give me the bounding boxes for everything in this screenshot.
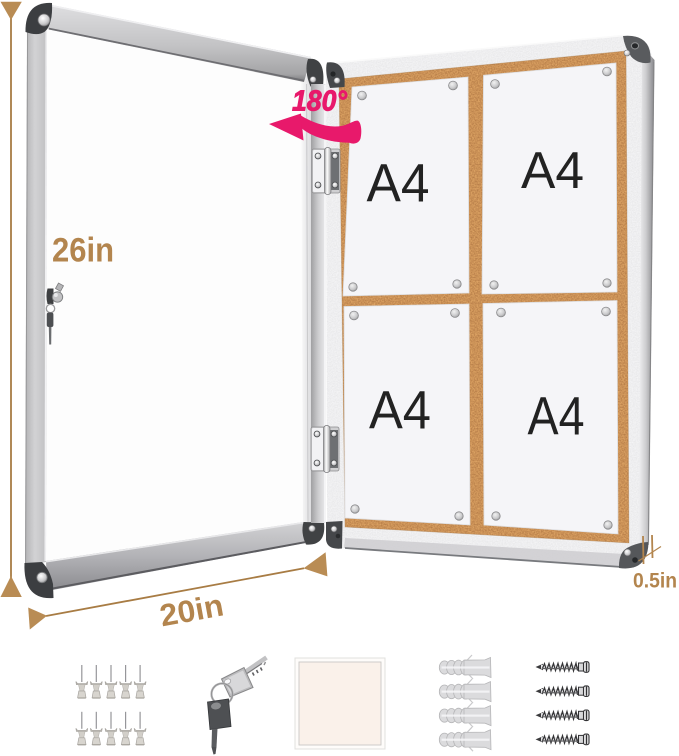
svg-text:A4: A4	[521, 142, 584, 200]
svg-text:180°: 180°	[292, 86, 348, 118]
svg-text:0.5in: 0.5in	[633, 569, 677, 593]
svg-text:26in: 26in	[52, 232, 114, 270]
svg-text:A4: A4	[369, 381, 431, 441]
svg-text:A4: A4	[528, 387, 585, 447]
svg-text:A4: A4	[367, 154, 430, 214]
